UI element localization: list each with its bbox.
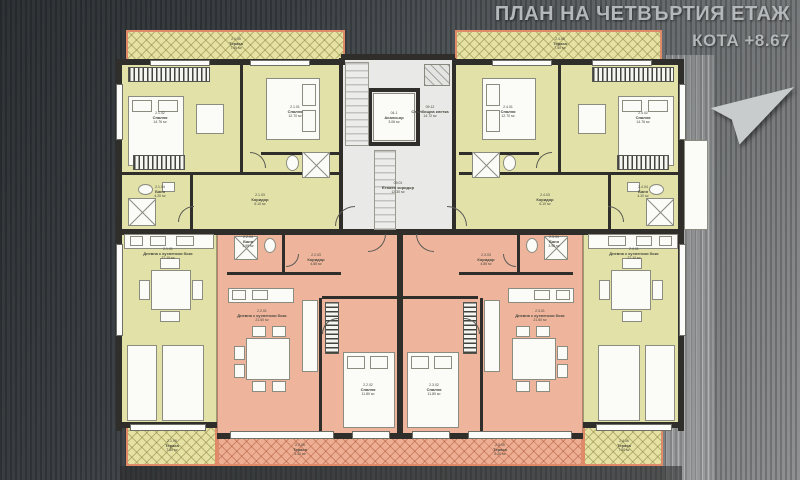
- wall-segment: [401, 296, 478, 299]
- shower: [646, 198, 674, 226]
- sofa: [598, 345, 640, 421]
- window-icon: [230, 431, 334, 439]
- bathtub: [472, 152, 500, 178]
- hob: [252, 290, 268, 300]
- wall-segment: [459, 272, 573, 275]
- desk: [196, 104, 224, 134]
- counter: [176, 236, 194, 246]
- pillow: [370, 356, 388, 369]
- room-label: 2.3.05Тераса5.20 м²: [493, 443, 507, 457]
- wall-segment: [319, 298, 322, 438]
- wall-segment: [517, 232, 520, 274]
- sofa: [162, 345, 204, 421]
- shower: [128, 198, 156, 226]
- desk: [578, 104, 606, 134]
- sink: [232, 290, 246, 300]
- room-label: 09.12Стълбищна клетка14.72 м²: [411, 105, 448, 119]
- wall-segment: [368, 142, 420, 146]
- dining-table: [246, 338, 290, 380]
- wall-segment: [339, 58, 343, 234]
- room-label: 04.1Асансьор3.06 м²: [384, 111, 403, 125]
- chair: [252, 381, 266, 392]
- screenshot-stage: ПЛАН НА ЧЕТВЪРТИЯ ЕТАЖ КОТА +8.67 2.1.05…: [0, 0, 800, 480]
- window-icon: [679, 244, 686, 336]
- dining-table: [512, 338, 556, 380]
- chair: [557, 364, 568, 378]
- room-label: 2.4.01Спалня12.70 м²: [501, 105, 516, 119]
- chair: [599, 280, 610, 300]
- sofa: [645, 345, 675, 421]
- room-label: 2.2.03Коридор4.85 м²: [307, 253, 324, 267]
- stair-flight: [345, 62, 369, 146]
- window-icon: [116, 84, 123, 140]
- wall-segment: [240, 64, 243, 174]
- dining-table: [611, 270, 651, 310]
- window-icon: [352, 431, 390, 439]
- toilet: [649, 184, 664, 195]
- toilet: [503, 155, 516, 171]
- window-icon: [116, 244, 123, 336]
- room-label: 2.1.04Баня4.20 м²: [154, 185, 165, 199]
- hob: [150, 236, 166, 246]
- room-label: 2.1.01Спалня12.70 м²: [288, 105, 303, 119]
- wall-segment: [322, 296, 399, 299]
- chair: [557, 346, 568, 360]
- wall-segment: [558, 64, 561, 174]
- wall-segment: [341, 54, 455, 60]
- bathtub: [302, 152, 330, 178]
- pillow: [132, 100, 152, 112]
- plan-shadow-bottom: [120, 466, 682, 480]
- window-icon: [679, 84, 686, 140]
- window-icon: [596, 424, 672, 431]
- chair: [160, 311, 180, 322]
- sink: [659, 236, 672, 246]
- chair: [536, 381, 550, 392]
- room-label: 2.4.04Баня4.20 м²: [637, 185, 648, 199]
- toilet: [286, 155, 299, 171]
- shaft: [424, 64, 450, 86]
- pillow: [648, 100, 668, 112]
- room-label: 2.4.03Коридор6.10 м²: [536, 193, 553, 207]
- chair: [652, 280, 663, 300]
- window-icon: [468, 431, 572, 439]
- chair: [272, 381, 286, 392]
- counter: [608, 236, 626, 246]
- room-label: 2.2.04Баня3.95 м²: [242, 235, 253, 249]
- pillow: [486, 84, 500, 106]
- sink: [130, 236, 143, 246]
- terrace-door-icon: [150, 60, 210, 66]
- chair: [536, 326, 550, 337]
- room-label: 2.4.06Тераса7.80 м²: [617, 439, 631, 453]
- wall-segment: [190, 174, 193, 231]
- wardrobe: [592, 67, 674, 82]
- sofa: [127, 345, 157, 421]
- chair: [234, 346, 245, 360]
- pillow: [434, 356, 452, 369]
- chair: [234, 364, 245, 378]
- window-icon: [412, 431, 450, 439]
- terrace-bottom-center: [217, 438, 583, 466]
- room-label: 2.3.02Спалня11.80 м²: [427, 383, 442, 397]
- wardrobe: [617, 155, 669, 170]
- sofa: [302, 300, 318, 372]
- toilet: [264, 238, 276, 253]
- wall-segment: [397, 232, 403, 438]
- terrace-door-icon: [592, 60, 652, 66]
- room-label: 2.1.03Коридор6.10 м²: [251, 193, 268, 207]
- pillow: [302, 84, 316, 106]
- chair: [516, 381, 530, 392]
- floor-plan: 2.1.05Тераса7.50 м²2.4.05Тераса7.50 м²2.…: [0, 0, 800, 480]
- room-label: 2.4.01Дневна с кухненски бокс27.10 м²: [609, 247, 658, 261]
- terrace-door-icon: [250, 60, 310, 66]
- pillow: [302, 110, 316, 132]
- room-label: 2.2.01Дневна с кухненски бокс21.60 м²: [237, 309, 286, 323]
- terrace-door-icon: [492, 60, 552, 66]
- pillow: [347, 356, 365, 369]
- toilet: [138, 184, 153, 195]
- room-label: 2.2.02Спалня11.80 м²: [361, 383, 376, 397]
- balcony-slab: [684, 140, 708, 230]
- room-label: 2.1.06Тераса7.80 м²: [165, 439, 179, 453]
- room-label: 2.2.05Тераса5.20 м²: [293, 443, 307, 457]
- room-label: 09.01Етажен коридор12.30 м²: [382, 181, 414, 195]
- chair: [516, 326, 530, 337]
- window-icon: [130, 424, 206, 431]
- wall-segment: [368, 88, 420, 92]
- wardrobe: [128, 67, 210, 82]
- dining-table: [151, 270, 191, 310]
- wall-segment: [480, 298, 483, 438]
- room-label: 2.3.03Коридор4.85 м²: [477, 253, 494, 267]
- room-label: 2.1.02Спалня14.76 м²: [153, 111, 168, 125]
- room-label: 2.4.05Тераса7.50 м²: [553, 37, 567, 51]
- wardrobe: [133, 155, 185, 170]
- chair: [272, 326, 286, 337]
- room-label: 2.3.01Дневна с кухненски бокс21.60 м²: [515, 309, 564, 323]
- room-label: 2.4.02Спалня14.76 м²: [636, 111, 651, 125]
- sofa: [484, 300, 500, 372]
- sink: [556, 290, 570, 300]
- room-label: 2.1.01Дневна с кухненски бокс27.10 м²: [143, 247, 192, 261]
- chair: [622, 311, 642, 322]
- wall-segment: [608, 174, 611, 231]
- wall-segment: [227, 272, 341, 275]
- room-label: 2.1.05Тераса7.50 м²: [229, 37, 243, 51]
- pillow: [411, 356, 429, 369]
- room-label: 2.3.04Баня3.95 м²: [548, 235, 559, 249]
- toilet: [526, 238, 538, 253]
- pillow: [486, 110, 500, 132]
- chair: [192, 280, 203, 300]
- wall-segment: [282, 232, 285, 274]
- hob: [636, 236, 652, 246]
- chair: [252, 326, 266, 337]
- hob: [534, 290, 550, 300]
- chair: [139, 280, 150, 300]
